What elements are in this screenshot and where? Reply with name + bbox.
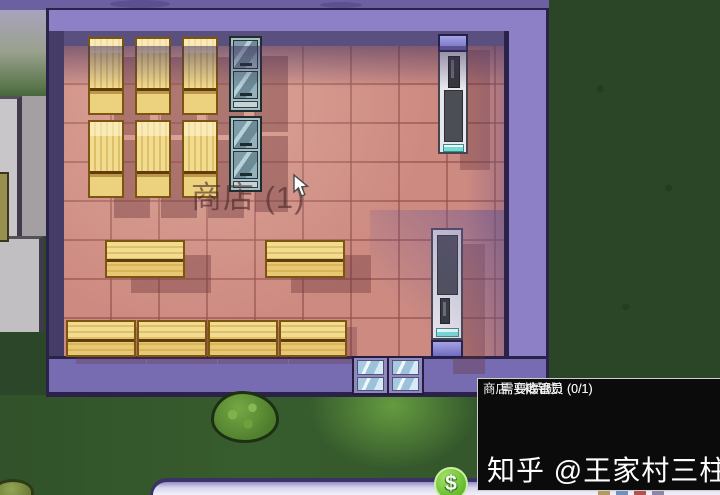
shop-wall-bottom — [49, 356, 546, 392]
fridge-base — [233, 101, 258, 108]
door-glass-pane — [357, 377, 384, 392]
fridge-glass-door — [233, 120, 258, 149]
mouse-cursor-icon — [291, 173, 310, 199]
door-glass-pane — [392, 377, 419, 392]
right-shadow-overlay — [466, 46, 504, 356]
sidewalk — [22, 96, 47, 236]
shop-wall-top — [49, 10, 546, 31]
zhihu-watermark: 知乎 @王家村三柱 — [487, 449, 720, 489]
shelf-horizontal[interactable] — [137, 320, 207, 357]
shelf-horizontal[interactable] — [66, 320, 136, 357]
neighbor-door[interactable] — [0, 172, 9, 242]
door-glass-pane — [392, 360, 419, 375]
shelf-horizontal[interactable] — [208, 320, 278, 357]
sliding-glass-door[interactable] — [352, 356, 424, 395]
door-panel — [354, 358, 387, 393]
left-light-glow — [0, 10, 47, 102]
shelf-horizontal[interactable] — [105, 240, 185, 278]
shop-wall-right — [509, 10, 546, 392]
money-coin-icon[interactable]: $ — [434, 467, 468, 495]
game-viewport: 商店 (1) $ 商店（未完成） 需要收银员 (0/1) 需要库管员 (0/1)… — [0, 0, 720, 495]
bagging-area — [443, 144, 464, 152]
door-light-glow — [308, 390, 478, 470]
wall-shadow-overlay — [64, 46, 504, 88]
shelf-vertical[interactable] — [88, 120, 124, 198]
shelf-vertical[interactable] — [135, 120, 171, 198]
neighbor-building-lower[interactable] — [0, 236, 44, 332]
shop-wall-left — [49, 31, 64, 358]
shelf-horizontal[interactable] — [265, 240, 345, 278]
shelf-horizontal[interactable] — [279, 320, 347, 357]
door-glass-pane — [357, 360, 384, 375]
door-panel — [389, 358, 422, 393]
tooltip-requirement-stocker: 需要库管员 (0/1) — [501, 382, 593, 397]
conveyor-belt — [444, 90, 463, 142]
shop-name-label: 商店 (1) — [191, 172, 306, 217]
